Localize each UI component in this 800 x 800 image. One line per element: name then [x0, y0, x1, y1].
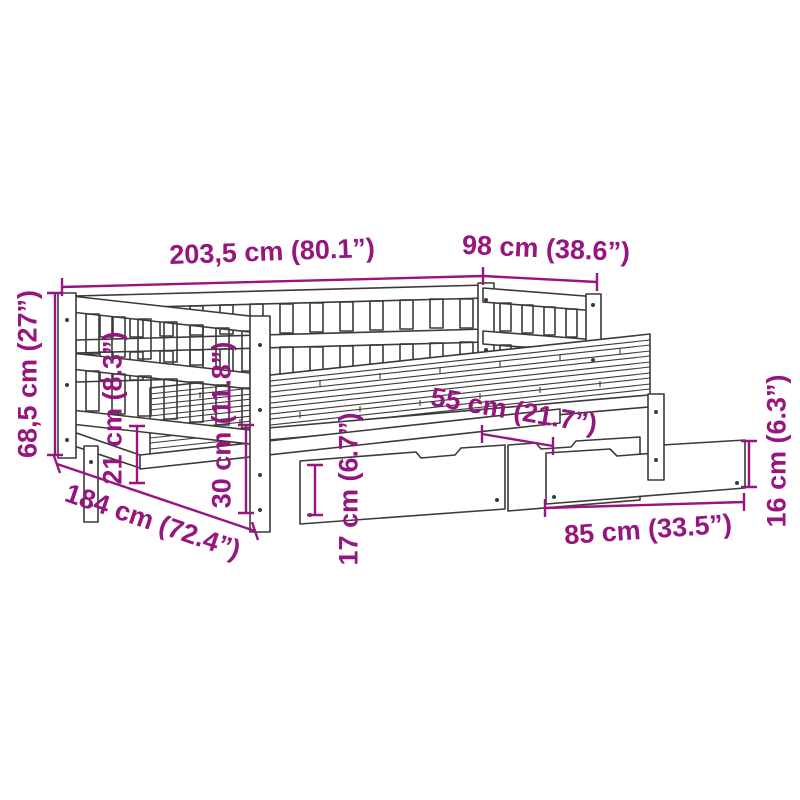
dim-label-30: 30 cm (11.8”)	[206, 342, 236, 509]
diagram-canvas: 203,5 cm (80.1”) 98 cm (38.6”) 68,5 cm (…	[0, 0, 800, 800]
drawer-left	[300, 445, 505, 524]
storage-drawers	[300, 437, 745, 524]
left-arm-back-post	[58, 293, 76, 458]
dim-label-height-left: 68,5 cm (27”)	[12, 290, 42, 458]
dim-label-length-top: 203,5 cm (80.1”)	[169, 233, 376, 270]
dim-line-width-top	[483, 273, 597, 291]
dim-label-16: 16 cm (6.3”)	[761, 374, 791, 527]
dim-label-width-top: 98 cm (38.6”)	[461, 230, 630, 267]
bed-front-right-leg	[648, 394, 664, 480]
dim-label-85: 85 cm (33.5”)	[563, 509, 733, 551]
dim-label-17: 17 cm (6.7”)	[333, 412, 363, 565]
dim-label-21: 21 cm (8.3”)	[97, 331, 127, 484]
daybed-dimension-diagram: 203,5 cm (80.1”) 98 cm (38.6”) 68,5 cm (…	[0, 0, 800, 800]
daybed-drawing	[58, 283, 745, 532]
